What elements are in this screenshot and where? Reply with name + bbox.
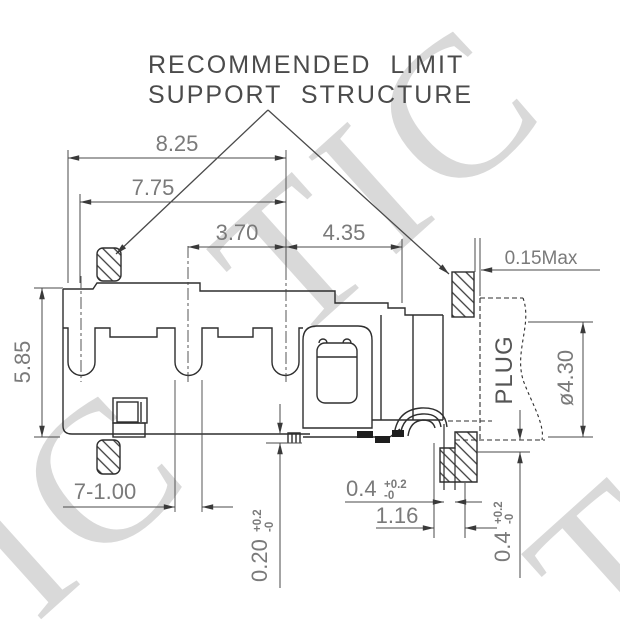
svg-text:0.4: 0.4 [490, 531, 515, 562]
dim-flange-gap: 0.15Max [505, 248, 578, 269]
drawing-canvas: TIC TIC TIC [0, 0, 620, 620]
dim-pin-width: 7-1.00 [74, 479, 136, 504]
support-block-bottom-left [97, 440, 120, 474]
dim-plug-diameter: ø4.30 [553, 350, 578, 406]
dim-body-height: 5.85 [10, 341, 35, 384]
leader-right [268, 110, 449, 274]
bottom-detail-block [113, 398, 147, 437]
connector-body [63, 283, 447, 443]
body-top-profile [63, 283, 443, 315]
dimension-labels: RECOMMENDED LIMIT SUPPORT STRUCTURE 8.25… [10, 51, 578, 582]
svg-text:+0.2: +0.2 [252, 509, 264, 532]
svg-text:-0: -0 [264, 522, 276, 532]
dim-pin-pitch: 3.70 [216, 220, 259, 245]
svg-text:0.4: 0.4 [346, 476, 377, 501]
annotation-line1: RECOMMENDED LIMIT [148, 51, 464, 79]
plug-label: PLUG [491, 335, 518, 404]
solder-pads [357, 430, 404, 443]
support-structures [97, 248, 477, 490]
svg-text:-0: -0 [384, 490, 394, 502]
svg-text:0.20: 0.20 [247, 539, 272, 582]
dim-pad-a: 0.4 +0.2 -0 [346, 476, 407, 502]
annotation-line2: SUPPORT STRUCTURE [148, 81, 473, 109]
dim-pad-b: 0.4 +0.2 -0 [490, 501, 516, 562]
pin-rail [63, 328, 303, 376]
dim-pad-offset: 1.16 [376, 503, 419, 528]
svg-text:-0: -0 [504, 514, 516, 524]
dim-top-width-inner: 7.75 [132, 175, 175, 200]
jack-housing [303, 326, 372, 428]
dim-top-width-outer: 8.25 [156, 131, 199, 156]
body-left-bottom [63, 289, 310, 434]
dim-front-length: 4.35 [323, 220, 366, 245]
break-line [521, 298, 543, 440]
dim-standoff: 0.20 +0.2 -0 [247, 509, 276, 582]
flange-upper [452, 272, 474, 317]
technical-drawing: RECOMMENDED LIMIT SUPPORT STRUCTURE 8.25… [0, 0, 620, 620]
jack-cavity [317, 343, 357, 403]
